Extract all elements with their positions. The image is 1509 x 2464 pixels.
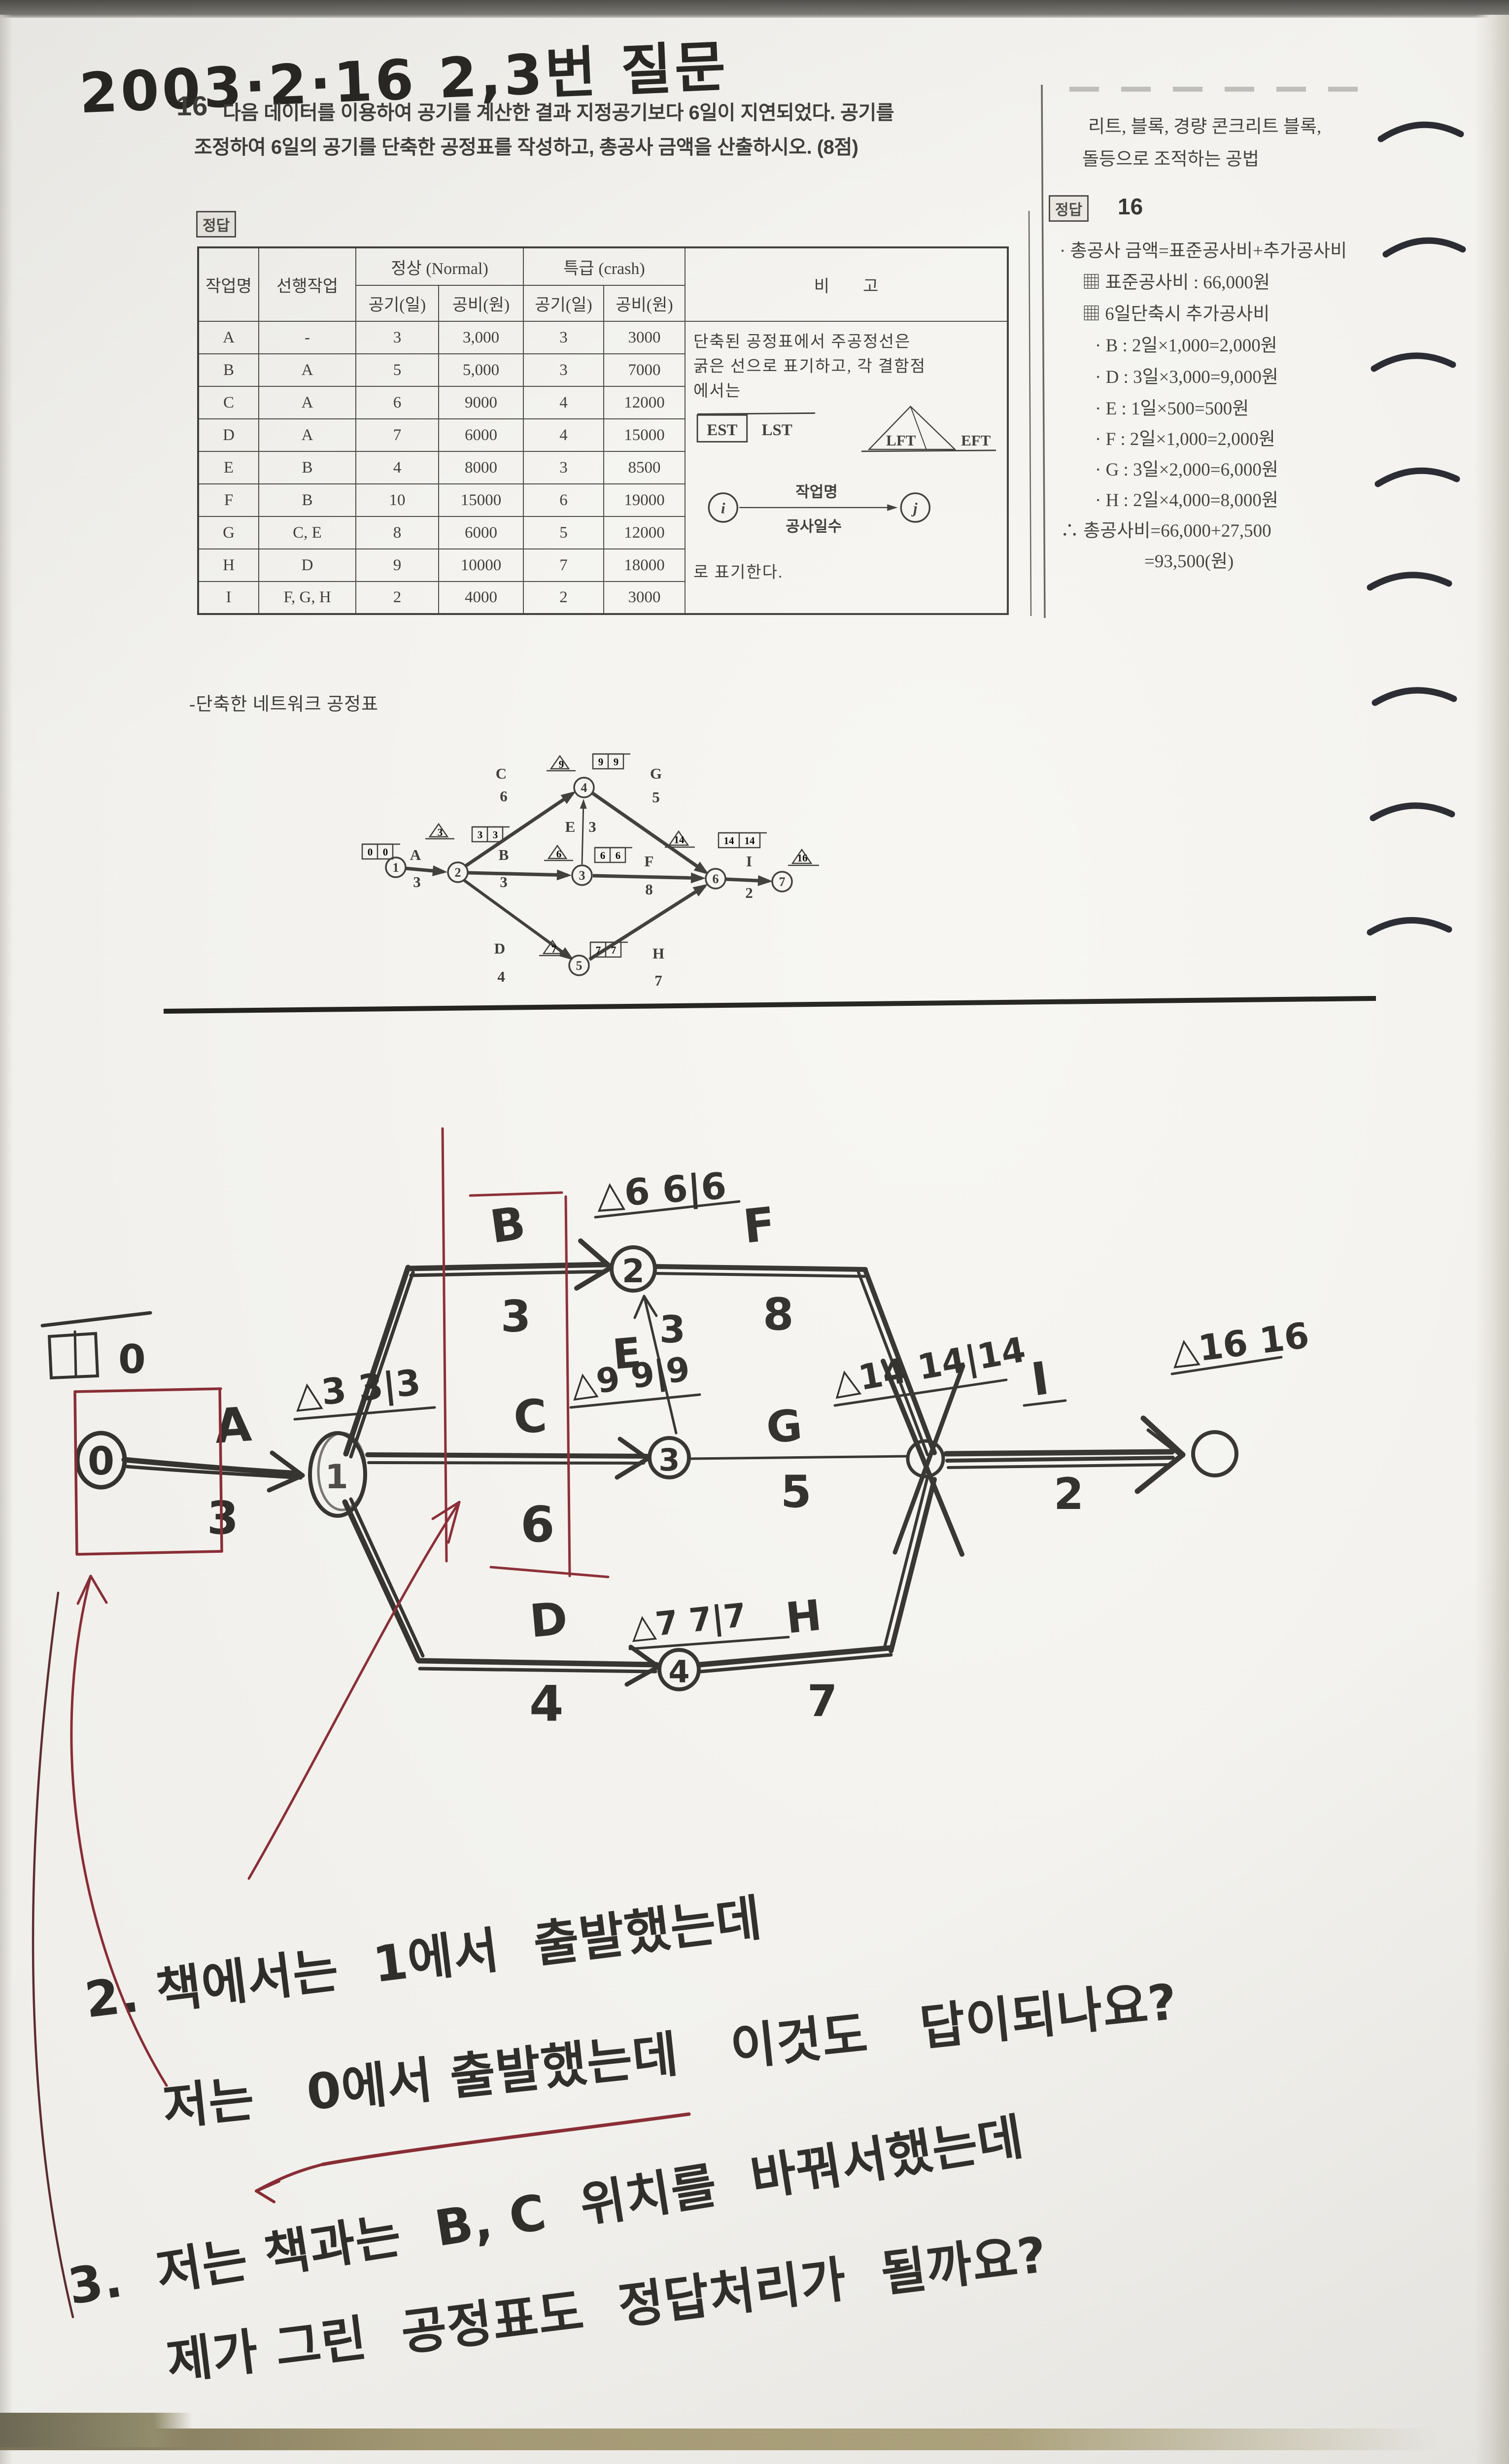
printed-node-7-label: 7 xyxy=(779,875,786,889)
svg-text:7: 7 xyxy=(611,944,617,956)
svg-text:8: 8 xyxy=(645,881,653,898)
hand-node-start: 0 xyxy=(88,1439,114,1484)
hand-edge-H: H xyxy=(784,1591,824,1643)
svg-text:2: 2 xyxy=(1054,1469,1084,1519)
hand-network-diagram: 0 1 2 3 4 0 △3 3|3 △6 6|6 △9 9|9 △7 7|7 … xyxy=(42,1165,1311,1733)
svg-text:7: 7 xyxy=(596,944,601,956)
svg-text:G: G xyxy=(650,765,662,782)
printed-node-4-label: 4 xyxy=(581,781,587,795)
svg-text:7: 7 xyxy=(654,972,662,989)
svg-text:H: H xyxy=(652,945,664,962)
svg-text:6: 6 xyxy=(600,850,606,861)
svg-text:E: E xyxy=(565,818,576,835)
svg-text:6: 6 xyxy=(500,787,508,805)
hand-node-1: 1 xyxy=(325,1458,348,1497)
svg-text:5: 5 xyxy=(652,788,660,806)
svg-text:6: 6 xyxy=(616,850,621,861)
page-graphics: 1 2 3 4 5 6 7 A 3 B 3 C 6 D 4 E 3 F xyxy=(0,0,1509,2464)
edge-label: A xyxy=(410,846,421,863)
svg-text:B: B xyxy=(499,846,509,863)
svg-text:3: 3 xyxy=(500,873,508,890)
svg-text:3: 3 xyxy=(478,829,483,841)
hand-est-n1: △3 3|3 xyxy=(292,1362,423,1416)
svg-text:0: 0 xyxy=(383,846,388,858)
hand-start-est: 0 xyxy=(118,1336,146,1382)
printed-network-diagram: 1 2 3 4 5 6 7 A 3 B 3 C 6 D 4 E 3 F xyxy=(362,754,819,989)
svg-text:3: 3 xyxy=(659,1307,686,1351)
hand-node-top: 2 xyxy=(622,1252,645,1290)
svg-text:14: 14 xyxy=(674,834,685,846)
hand-est-top: △6 6|6 xyxy=(595,1165,728,1216)
svg-text:4: 4 xyxy=(529,1675,564,1733)
svg-text:9: 9 xyxy=(614,756,619,768)
svg-text:5: 5 xyxy=(781,1466,812,1518)
printed-node-3-label: 3 xyxy=(579,868,585,883)
hand-edge-G: G xyxy=(764,1400,804,1453)
red-annotations xyxy=(33,1129,689,2317)
hand-est-bottom: △7 7|7 xyxy=(629,1596,748,1646)
svg-text:3: 3 xyxy=(588,818,596,835)
printed-node-2-label: 2 xyxy=(455,865,461,880)
hand-est-end: △16 16 xyxy=(1169,1314,1311,1372)
hand-node-bottom: 4 xyxy=(668,1654,689,1690)
printed-node-1-label: 1 xyxy=(393,860,399,875)
svg-text:14: 14 xyxy=(724,835,735,847)
photographed-notebook-page: 2003·2·16 2,3번 질문 16 다음 데이터를 이용하여 공기를 계산… xyxy=(0,0,1509,2464)
hand-edge-D: D xyxy=(528,1592,570,1648)
svg-text:6: 6 xyxy=(520,1496,555,1553)
svg-text:0: 0 xyxy=(368,846,373,858)
svg-text:7: 7 xyxy=(551,943,557,955)
svg-text:9: 9 xyxy=(598,756,604,768)
svg-text:F: F xyxy=(645,853,654,870)
red-underline-q2 xyxy=(323,2114,689,2164)
red-arrow-q2-to-start xyxy=(71,1576,167,2086)
red-arrow-to-bc xyxy=(249,1502,459,1879)
sidebar-divider xyxy=(1029,85,1045,618)
svg-text:C: C xyxy=(496,765,507,782)
spiral-binding-marks xyxy=(1370,125,1463,932)
svg-text:3: 3 xyxy=(493,829,498,841)
svg-text:6: 6 xyxy=(556,848,562,860)
printed-node-6-label: 6 xyxy=(713,872,719,886)
svg-text:3: 3 xyxy=(501,1291,531,1342)
svg-text:8: 8 xyxy=(763,1289,794,1340)
hand-edge-C: C xyxy=(513,1390,549,1444)
svg-text:16: 16 xyxy=(797,852,808,864)
svg-text:7: 7 xyxy=(807,1676,837,1726)
svg-text:9: 9 xyxy=(559,758,564,770)
hand-edge-I: I xyxy=(1028,1352,1052,1406)
svg-text:I: I xyxy=(746,853,752,870)
hand-node-mid: 3 xyxy=(658,1442,680,1478)
svg-text:4: 4 xyxy=(497,968,505,985)
section-rule xyxy=(164,998,1376,1011)
svg-text:D: D xyxy=(494,940,505,957)
red-arrow-q3-to-start xyxy=(33,1593,73,2317)
svg-text:14: 14 xyxy=(745,835,755,847)
svg-text:2: 2 xyxy=(745,884,753,901)
svg-text:3: 3 xyxy=(413,873,421,890)
svg-text:3: 3 xyxy=(438,826,443,838)
hand-edge-F: F xyxy=(741,1198,778,1254)
hand-edge-E: E xyxy=(611,1328,643,1379)
printed-node-5-label: 5 xyxy=(576,958,583,973)
hand-edge-B: B xyxy=(487,1197,528,1254)
